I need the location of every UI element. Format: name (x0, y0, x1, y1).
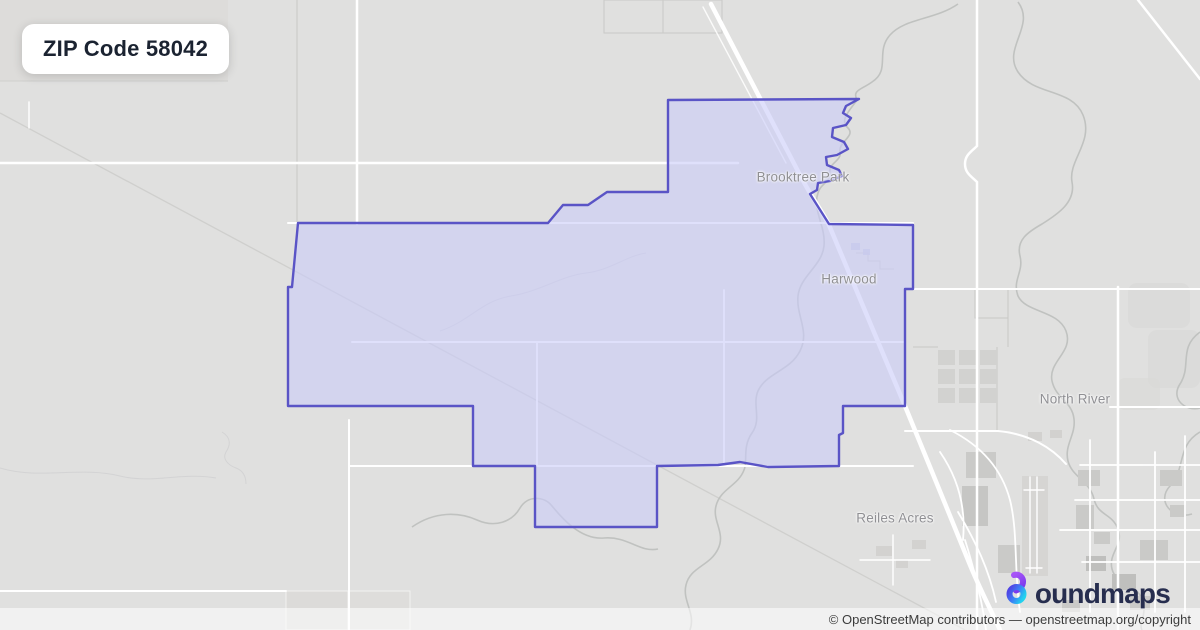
attribution-link[interactable]: © OpenStreetMap contributors — openstree… (829, 612, 1191, 627)
boundmaps-b-icon (1004, 571, 1035, 605)
attribution-bar: © OpenStreetMap contributors — openstree… (0, 608, 1200, 630)
feedlot-grid (938, 350, 997, 403)
map-label-north-river: North River (1040, 392, 1110, 407)
boundmaps-logo: oundmaps (1004, 571, 1170, 605)
map-label-reiles-acres: Reiles Acres (856, 511, 933, 526)
map[interactable]: Brooktree Park Harwood North River Reile… (0, 0, 1200, 630)
map-label-brooktree-park: Brooktree Park (757, 170, 850, 185)
boundmaps-logo-text: oundmaps (1035, 580, 1170, 608)
map-canvas[interactable] (0, 0, 1200, 630)
map-label-harwood: Harwood (821, 272, 876, 287)
zip-code-badge: ZIP Code 58042 (22, 24, 229, 74)
